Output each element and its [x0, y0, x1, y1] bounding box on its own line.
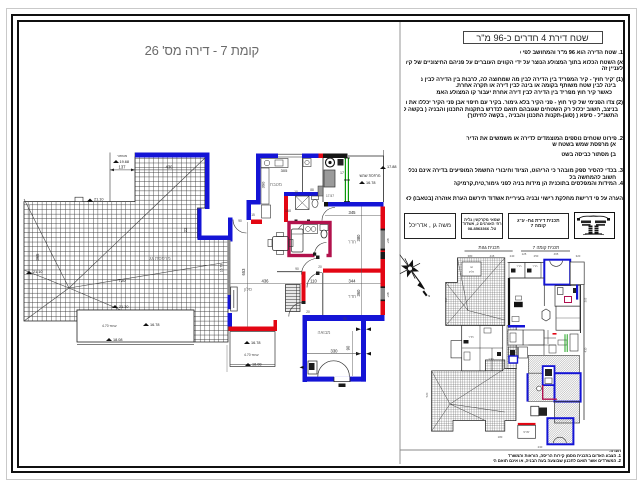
svg-text:+68: +68 — [386, 292, 390, 297]
svg-text:720: 720 — [119, 278, 127, 283]
svg-text:20: 20 — [306, 310, 310, 314]
svg-text:390: 390 — [261, 181, 266, 188]
svg-text:230: 230 — [538, 445, 543, 449]
svg-text:320: 320 — [576, 254, 581, 258]
svg-text:110: 110 — [310, 279, 317, 284]
svg-text:15: 15 — [251, 213, 255, 217]
svg-text:20: 20 — [318, 265, 322, 269]
svg-text:מטבח: מטבח — [270, 182, 282, 187]
svg-text:653: 653 — [241, 268, 246, 276]
svg-text:19.68: 19.68 — [120, 160, 130, 164]
svg-text:+68: +68 — [386, 238, 390, 243]
svg-text:16.78: 16.78 — [251, 341, 261, 345]
svg-text:4.70 עמוד: 4.70 עמוד — [244, 353, 259, 357]
svg-text:90: 90 — [343, 317, 347, 321]
svg-text:520: 520 — [425, 392, 429, 397]
svg-text:17.88: 17.88 — [387, 165, 397, 169]
svg-text:צ: צ — [428, 294, 430, 298]
svg-text:16.78: 16.78 — [220, 264, 224, 273]
svg-text:137: 137 — [119, 165, 127, 170]
svg-text:מרפסת שמש: מרפסת שמש — [359, 174, 380, 178]
svg-text:465: 465 — [554, 252, 559, 256]
svg-text:125: 125 — [522, 252, 527, 256]
svg-text:סלון: סלון — [244, 287, 252, 292]
svg-text:חדר: חדר — [468, 335, 473, 339]
svg-text:240: 240 — [510, 254, 515, 258]
svg-text:380: 380 — [356, 234, 361, 242]
svg-text:16.78: 16.78 — [150, 323, 160, 327]
svg-text:430: 430 — [166, 164, 174, 169]
svg-text:360: 360 — [356, 289, 361, 297]
svg-text:345: 345 — [349, 210, 357, 215]
svg-text:410: 410 — [584, 347, 588, 352]
svg-text:344: 344 — [349, 279, 357, 284]
svg-text:180: 180 — [498, 435, 503, 439]
svg-text:חדר: חדר — [348, 294, 356, 299]
svg-text:מסתור: מסתור — [117, 154, 128, 158]
svg-text:90: 90 — [295, 267, 299, 271]
svg-text:21.10: 21.10 — [94, 198, 104, 202]
svg-text:21.10: 21.10 — [33, 270, 43, 274]
svg-text:365: 365 — [444, 297, 448, 302]
svg-text:עליון: עליון — [469, 270, 475, 274]
svg-text:21.30: 21.30 — [119, 305, 129, 309]
svg-text:90: 90 — [346, 345, 351, 350]
svg-text:330: 330 — [331, 348, 339, 353]
svg-text:חדר: חדר — [348, 240, 356, 245]
svg-text:250: 250 — [534, 254, 539, 258]
svg-text:16.78: 16.78 — [366, 181, 376, 185]
svg-text:415: 415 — [490, 254, 495, 258]
svg-text:חדר: חדר — [517, 264, 522, 268]
svg-text:17: 17 — [340, 171, 344, 175]
svg-text:22: 22 — [183, 227, 188, 232]
svg-text:17.57: 17.57 — [326, 194, 334, 198]
svg-text:4.70 עמוד: 4.70 עמוד — [102, 324, 117, 328]
svg-text:90: 90 — [238, 219, 242, 223]
svg-text:436: 436 — [262, 279, 270, 284]
svg-text:מבואה: מבואה — [318, 330, 331, 335]
svg-text:305: 305 — [281, 168, 288, 173]
svg-text:365: 365 — [35, 253, 40, 261]
svg-text:10: 10 — [294, 190, 298, 194]
svg-text:88: 88 — [310, 188, 314, 192]
svg-text:160: 160 — [285, 209, 291, 213]
svg-text:מרפסת גג: מרפסת גג — [149, 256, 171, 262]
svg-text:380: 380 — [468, 254, 473, 258]
svg-text:מרפ': מרפ' — [524, 430, 530, 434]
svg-text:18.08: 18.08 — [113, 338, 123, 342]
svg-text:18.08: 18.08 — [252, 363, 262, 367]
svg-text:חדר: חדר — [533, 264, 538, 268]
svg-text:365: 365 — [584, 297, 588, 302]
